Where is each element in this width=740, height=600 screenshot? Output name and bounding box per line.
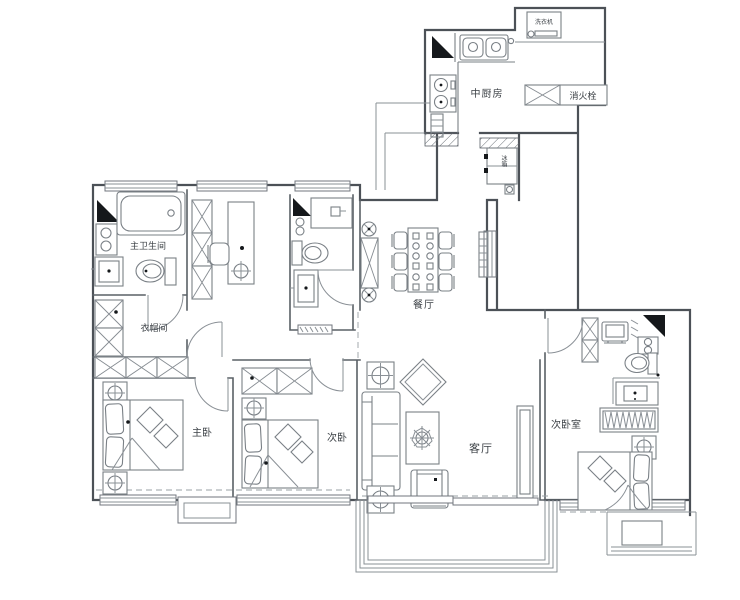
bed — [242, 420, 318, 488]
plant-icon — [362, 222, 376, 236]
master-bedroom: 主卧 — [103, 378, 228, 494]
bed — [578, 452, 652, 510]
living-room: 客厅 — [362, 359, 538, 513]
bathtub — [117, 192, 185, 235]
window-bottom-second — [237, 495, 350, 505]
pillow — [633, 455, 649, 482]
bathroom-sink — [290, 270, 318, 307]
floor-plan: 中厨房 洗衣机 消火栓 冰箱 — [0, 0, 740, 600]
window-top-2 — [197, 181, 267, 191]
bath-counter — [311, 198, 352, 228]
nightstand-lamp — [103, 472, 127, 494]
duct-shaft — [582, 318, 598, 362]
shower-control — [638, 337, 658, 354]
pillow — [105, 437, 124, 468]
window-top-3 — [295, 181, 350, 191]
door-arc — [310, 358, 343, 391]
washing-machine-label: 洗衣机 — [535, 18, 553, 26]
study-wardrobe — [192, 200, 212, 299]
stove — [430, 75, 456, 112]
window-top-1 — [105, 181, 177, 191]
shower-door-ticks — [631, 320, 638, 338]
wardrobe-column — [95, 300, 123, 356]
wall-hatch-block — [425, 133, 458, 146]
hall-cabinet — [361, 238, 378, 288]
door-arc — [318, 270, 353, 305]
cloakroom-label: 衣帽间 — [140, 322, 167, 333]
wardrobe — [242, 368, 312, 394]
bath-window — [298, 325, 332, 334]
sofa — [362, 392, 400, 490]
fire-hydrant-label: 消火栓 — [569, 90, 596, 101]
floor-plan-canvas: 中厨房 洗衣机 消火栓 冰箱 — [0, 0, 740, 600]
master-bedroom-label: 主卧 — [192, 426, 212, 439]
toilet — [625, 353, 660, 377]
closet-hanging-rail — [600, 408, 658, 432]
refrigerator: 冰箱 — [484, 148, 517, 194]
balcony-right — [607, 512, 696, 555]
direction-triangle-marker — [432, 36, 454, 58]
direction-triangle-marker — [293, 198, 311, 216]
cloakroom: 衣帽间 — [95, 300, 188, 378]
coffee-table — [406, 412, 439, 464]
second-bedroom-label: 次卧 — [327, 431, 347, 444]
diamond-rug — [400, 359, 446, 405]
desk-chair — [208, 243, 229, 265]
door-arc — [195, 378, 228, 411]
refrigerator-label: 冰箱 — [500, 154, 507, 168]
guest-bedroom-label: 次卧室 — [551, 418, 581, 431]
dining-room-label: 餐厅 — [413, 298, 435, 311]
pillow — [105, 404, 124, 435]
side-table-lamp — [367, 362, 394, 389]
second-bathroom — [290, 198, 353, 334]
direction-triangle-marker — [97, 200, 119, 222]
window-lightwell — [484, 231, 496, 277]
second-bedroom: 次卧 — [242, 358, 347, 488]
door-arc — [187, 322, 222, 357]
master-bathroom-label: 主卫生间 — [130, 240, 166, 251]
bay-window — [178, 497, 236, 523]
dining-room: 餐厅 — [361, 222, 487, 311]
faucet-icon — [508, 38, 513, 43]
tv-on-stand — [602, 322, 628, 343]
plant-icon — [362, 288, 376, 302]
toilet — [292, 241, 328, 265]
door-arc — [548, 318, 583, 353]
wall-hatch-block — [480, 138, 519, 148]
living-room-label: 客厅 — [469, 441, 493, 455]
water-heater — [96, 224, 117, 255]
faucet-icon — [331, 207, 340, 216]
fire-hydrant-cabinet: 消火栓 — [525, 85, 607, 105]
dining-table — [392, 228, 454, 292]
tv-cabinet — [517, 406, 533, 498]
toilet — [136, 258, 176, 285]
wardrobe-row — [95, 357, 188, 378]
kitchen-label: 中厨房 — [471, 87, 504, 100]
direction-triangle-marker — [643, 315, 665, 337]
laundry-area: 洗衣机 — [527, 12, 561, 38]
shower-control — [296, 218, 304, 235]
planter-box — [622, 521, 662, 545]
bed — [103, 400, 183, 470]
kitchen-sink — [460, 35, 514, 60]
pillow — [244, 424, 261, 453]
floor-drain-icon — [505, 185, 514, 194]
study-room — [187, 200, 254, 357]
guest-bedroom: 次卧室 — [548, 315, 665, 510]
bathroom-sink — [91, 257, 123, 286]
window-bottom-master — [100, 495, 176, 505]
kitchen: 中厨房 — [430, 33, 515, 137]
nightstand-lamp — [242, 398, 266, 419]
vanity-sink — [616, 382, 658, 405]
